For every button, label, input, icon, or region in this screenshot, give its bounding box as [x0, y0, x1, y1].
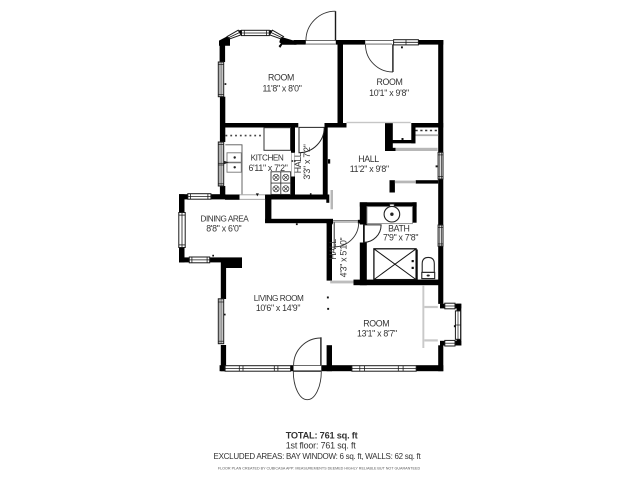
svg-text:KITCHEN: KITCHEN [251, 153, 284, 162]
svg-text:HALL: HALL [358, 154, 379, 164]
svg-text:LIVING ROOM: LIVING ROOM [254, 294, 304, 303]
svg-text:HALL: HALL [328, 239, 338, 260]
svg-text:ROOM: ROOM [268, 73, 294, 83]
svg-text:EXCLUDED AREAS: BAY WINDOW: 6: EXCLUDED AREAS: BAY WINDOW: 6 sq. ft, WA… [214, 452, 422, 461]
svg-text:7'9" x 7'8": 7'9" x 7'8" [383, 232, 418, 242]
svg-text:10'1" x 9'8": 10'1" x 9'8" [369, 88, 409, 98]
svg-text:8'8" x 6'0": 8'8" x 6'0" [206, 224, 241, 234]
svg-text:3'3" x 7'2": 3'3" x 7'2" [302, 144, 312, 179]
svg-text:DINING AREA: DINING AREA [200, 215, 249, 224]
svg-text:13'1" x 8'7": 13'1" x 8'7" [357, 328, 397, 338]
svg-text:TOTAL: 761 sq. ft: TOTAL: 761 sq. ft [286, 431, 358, 441]
svg-text:1st floor: 761 sq. ft: 1st floor: 761 sq. ft [286, 441, 357, 451]
svg-text:ROOM: ROOM [363, 318, 389, 328]
svg-text:FLOOR PLAN CREATED BY CUBICASA: FLOOR PLAN CREATED BY CUBICASA APP: MEAS… [218, 467, 421, 471]
svg-text:11'8" x 8'0": 11'8" x 8'0" [262, 83, 301, 93]
svg-text:10'6" x 14'9": 10'6" x 14'9" [256, 303, 301, 313]
svg-text:6'11" x 7'2": 6'11" x 7'2" [248, 163, 287, 173]
svg-text:4'3" x 5'10": 4'3" x 5'10" [338, 237, 348, 277]
svg-text:11'2" x 9'8": 11'2" x 9'8" [350, 164, 389, 174]
svg-text:ROOM: ROOM [377, 77, 403, 87]
